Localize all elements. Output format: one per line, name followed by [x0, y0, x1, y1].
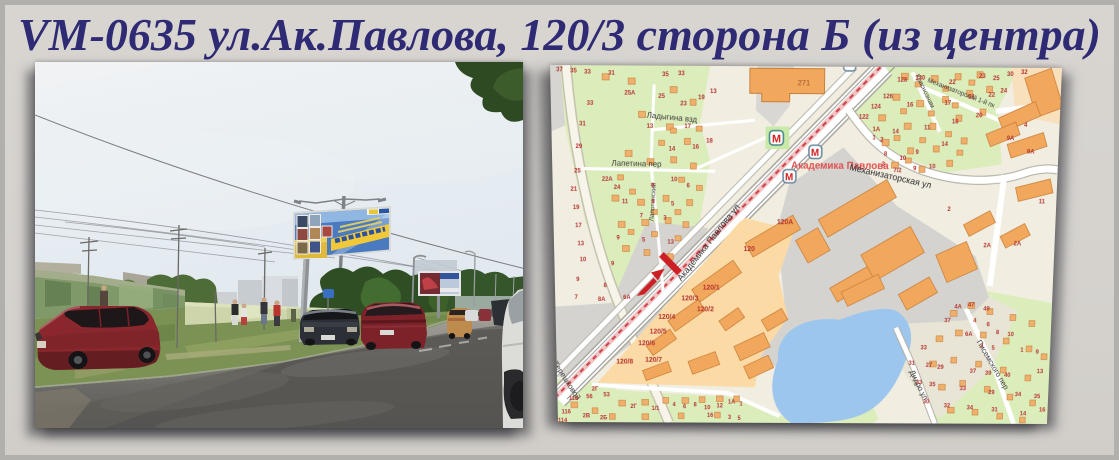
svg-text:9А: 9А [1027, 149, 1035, 156]
svg-text:6А: 6А [965, 331, 973, 338]
svg-text:M: M [785, 172, 793, 183]
svg-text:47: 47 [968, 302, 975, 309]
svg-text:120/4: 120/4 [658, 312, 675, 321]
svg-text:25А: 25А [624, 90, 636, 97]
svg-text:6: 6 [687, 182, 691, 189]
svg-text:29: 29 [937, 364, 944, 371]
svg-text:16: 16 [692, 144, 699, 151]
svg-text:120/2: 120/2 [697, 305, 714, 314]
svg-text:40: 40 [1004, 372, 1011, 379]
svg-text:23: 23 [979, 73, 986, 80]
svg-text:8: 8 [651, 182, 655, 189]
svg-text:27: 27 [926, 362, 933, 369]
svg-text:2Г: 2Г [630, 403, 637, 410]
svg-text:19: 19 [698, 94, 705, 101]
svg-text:29: 29 [576, 143, 583, 150]
svg-text:37: 37 [970, 368, 977, 375]
svg-text:120: 120 [744, 244, 755, 253]
svg-text:9: 9 [651, 198, 655, 205]
svg-text:122: 122 [859, 114, 870, 121]
svg-text:120А: 120А [777, 217, 794, 226]
svg-text:22: 22 [949, 79, 956, 86]
svg-text:10: 10 [671, 176, 678, 183]
svg-text:M: M [772, 133, 781, 145]
svg-text:14: 14 [669, 146, 676, 153]
svg-text:25: 25 [658, 93, 665, 100]
svg-text:30: 30 [923, 399, 930, 406]
svg-text:21: 21 [570, 186, 577, 193]
svg-text:18: 18 [952, 118, 959, 125]
svg-text:7: 7 [575, 294, 579, 301]
svg-text:10: 10 [580, 256, 587, 263]
svg-text:17: 17 [684, 123, 691, 130]
svg-text:13: 13 [577, 240, 584, 247]
svg-text:11: 11 [1039, 198, 1046, 205]
svg-text:5: 5 [737, 415, 741, 421]
svg-text:34: 34 [967, 405, 974, 412]
svg-text:49: 49 [983, 306, 990, 313]
svg-text:14: 14 [941, 141, 948, 148]
svg-text:2В: 2В [583, 413, 591, 420]
svg-text:2А: 2А [983, 242, 991, 249]
svg-text:120/3: 120/3 [681, 294, 698, 303]
svg-text:120/6: 120/6 [638, 339, 655, 348]
svg-text:Лапетина пер: Лапетина пер [611, 159, 661, 169]
svg-text:31: 31 [579, 120, 586, 127]
svg-text:35: 35 [929, 381, 936, 388]
svg-text:10: 10 [899, 155, 906, 162]
svg-text:56: 56 [586, 394, 593, 401]
svg-text:2А: 2А [1014, 241, 1022, 248]
svg-text:33: 33 [959, 385, 966, 392]
svg-text:11: 11 [924, 124, 931, 131]
svg-text:31: 31 [908, 360, 915, 367]
svg-text:13: 13 [667, 239, 674, 246]
svg-text:31: 31 [991, 407, 998, 414]
svg-text:9: 9 [611, 261, 615, 268]
svg-text:11: 11 [622, 198, 629, 205]
svg-text:16: 16 [1039, 407, 1046, 414]
svg-text:22А: 22А [602, 176, 613, 183]
svg-text:9: 9 [576, 276, 580, 283]
svg-text:128: 128 [897, 77, 908, 84]
svg-text:35: 35 [1034, 393, 1041, 400]
svg-text:20: 20 [976, 112, 983, 119]
svg-text:3: 3 [728, 414, 732, 420]
svg-text:9А: 9А [1007, 135, 1015, 142]
svg-text:3: 3 [663, 215, 667, 222]
svg-text:31: 31 [608, 70, 615, 77]
svg-text:10: 10 [929, 163, 936, 170]
svg-text:32: 32 [1021, 69, 1028, 76]
svg-text:39: 39 [985, 370, 992, 377]
svg-text:32: 32 [944, 403, 951, 410]
svg-text:2Б: 2Б [600, 415, 608, 422]
svg-text:116: 116 [562, 409, 572, 416]
svg-text:4: 4 [672, 402, 676, 409]
svg-text:1: 1 [739, 401, 743, 408]
svg-text:7/2: 7/2 [893, 167, 902, 174]
svg-text:10: 10 [1007, 331, 1014, 338]
svg-text:37: 37 [944, 317, 951, 324]
svg-text:4А: 4А [954, 304, 962, 311]
svg-text:271: 271 [798, 78, 811, 87]
svg-text:12: 12 [716, 403, 723, 410]
svg-text:8: 8 [693, 402, 697, 409]
svg-text:120/5: 120/5 [650, 327, 667, 336]
svg-text:33: 33 [678, 70, 685, 77]
svg-text:9: 9 [616, 235, 620, 242]
svg-text:35: 35 [662, 71, 669, 78]
svg-text:16: 16 [707, 412, 714, 419]
svg-text:7: 7 [640, 213, 644, 220]
svg-text:2Г: 2Г [592, 386, 599, 393]
svg-text:130: 130 [915, 75, 926, 82]
svg-text:18: 18 [706, 138, 713, 145]
svg-text:33: 33 [916, 380, 923, 387]
svg-text:17: 17 [575, 222, 582, 229]
svg-text:17: 17 [944, 100, 951, 107]
svg-text:16: 16 [907, 102, 914, 109]
svg-text:13: 13 [1037, 368, 1044, 375]
svg-text:30: 30 [1007, 71, 1014, 78]
svg-text:13: 13 [710, 88, 717, 95]
svg-text:5: 5 [671, 201, 675, 208]
svg-text:120/7: 120/7 [645, 355, 662, 364]
svg-text:120/1: 120/1 [703, 283, 720, 292]
svg-text:33: 33 [587, 100, 594, 107]
svg-text:8: 8 [604, 282, 608, 289]
svg-text:22: 22 [988, 92, 995, 99]
svg-text:33: 33 [920, 345, 927, 352]
svg-text:24: 24 [1000, 88, 1007, 95]
svg-text:53: 53 [603, 392, 610, 399]
svg-text:29: 29 [988, 389, 995, 396]
svg-text:24: 24 [614, 184, 621, 191]
svg-text:37: 37 [556, 66, 563, 73]
svg-text:8А: 8А [598, 296, 606, 303]
svg-text:14: 14 [892, 128, 899, 135]
svg-text:10: 10 [704, 405, 711, 412]
svg-text:126: 126 [883, 93, 894, 100]
svg-text:1/1: 1/1 [651, 405, 660, 412]
svg-text:25: 25 [574, 168, 581, 175]
svg-text:14: 14 [1020, 411, 1027, 418]
svg-text:1А: 1А [872, 126, 880, 133]
svg-text:21: 21 [968, 94, 975, 101]
svg-text:M: M [811, 148, 819, 159]
svg-text:124: 124 [871, 103, 882, 110]
svg-text:34: 34 [1015, 391, 1022, 398]
svg-text:6: 6 [683, 404, 687, 411]
svg-text:23: 23 [680, 100, 687, 107]
svg-text:19: 19 [573, 204, 580, 211]
svg-text:5: 5 [642, 237, 646, 244]
svg-text:35: 35 [570, 67, 577, 74]
svg-text:6А: 6А [623, 294, 631, 301]
svg-text:118: 118 [569, 395, 579, 402]
svg-text:120/8: 120/8 [616, 357, 633, 366]
svg-text:25: 25 [993, 75, 1000, 82]
svg-text:1А: 1А [728, 399, 736, 406]
svg-text:33: 33 [584, 69, 591, 76]
svg-text:13: 13 [647, 123, 654, 130]
